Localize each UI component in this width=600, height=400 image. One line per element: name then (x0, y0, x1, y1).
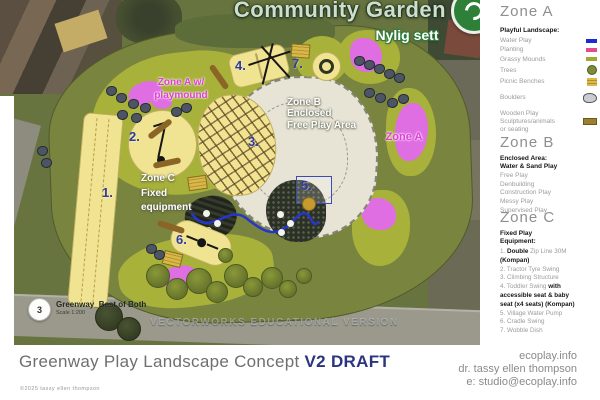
stepping-stone (287, 220, 294, 227)
equipment-item-1: 1. Double Zip Line 30M (500, 248, 597, 257)
contact-block: ecoplay.info dr. tassy ellen thompson e:… (458, 350, 577, 390)
equipment-item-4c: seat (x4 seats) (Kompan) (500, 301, 597, 310)
boulders-swatch-icon (583, 93, 597, 103)
legend-row-picnic-benches: Picnic Benches (500, 78, 597, 86)
marker-4: 4. (235, 58, 246, 73)
contact-website: ecoplay.info (458, 350, 577, 363)
legend-row-wooden-play: Wooden Play Sculptures/animals or seatin… (500, 110, 597, 134)
stepping-stone (278, 229, 285, 236)
page-margin (0, 96, 14, 345)
legend-row-grassy-mounds: Grassy Mounds (500, 56, 597, 63)
zone-b-heading: Zone B (500, 134, 597, 151)
zone-a-heading: Zone A (500, 3, 597, 20)
boulder-icon (37, 146, 48, 156)
equipment-item-2: 2. Tractor Tyre Swing (500, 266, 597, 275)
legend-row-water-play: Water Play (500, 37, 597, 44)
marker-2: 2. (129, 129, 140, 144)
wooden-play-swatch-icon (583, 118, 597, 125)
tree-icon (206, 281, 228, 303)
legend-section-zone-c: Zone C Fixed Play Equipment: 1. Double Z… (500, 209, 597, 336)
concept-board-page: 1. 2. 3. 4. 5. 6. 7. Zone A w/ playmound… (0, 0, 600, 400)
equipment-item-3: 3. Climbing Structure (500, 274, 597, 283)
marker-1: 1. (102, 185, 113, 200)
planting-swatch-icon (586, 48, 597, 52)
map-sublabel: Nylig sett (352, 27, 462, 43)
zone-a-right-label: Zone A (384, 130, 424, 144)
tree-icon (296, 268, 312, 284)
page-title: Greenway Play Landscape Concept V2 DRAFT (19, 352, 390, 372)
water-pump-icon (302, 197, 316, 211)
tree-icon (166, 278, 188, 300)
vectorworks-watermark: VECTORWORKS EDUCATIONAL VERSION (150, 317, 399, 328)
stepping-stone (214, 220, 221, 227)
wobble-dish-area (312, 52, 341, 81)
legend-row-boulders: Boulders (500, 93, 597, 103)
site-plan-map: 1. 2. 3. 4. 5. 6. 7. Zone A w/ playmound… (0, 0, 480, 345)
legend-row-trees: Trees (500, 65, 597, 75)
marker-3: 3. (248, 134, 259, 149)
tree-icon (243, 277, 263, 297)
sheet-number-badge: 3 (28, 298, 51, 321)
legend-section-zone-a: Zone A Playful Landscape: Water Play Pla… (500, 3, 597, 134)
equipment-item-6: 6. Cradle Swing (500, 318, 597, 327)
tree-icon (218, 248, 233, 263)
grassy-mounds-swatch-icon (586, 57, 597, 61)
equipment-item-1b: (Kompan) (500, 257, 597, 266)
zone-c-heading: Zone C (500, 209, 597, 226)
map-place-label: Community Garden (180, 0, 480, 23)
drawing-title: Greenway_Best of Both (56, 300, 146, 309)
zone-c-label: Zone C Fixed equipment (141, 172, 192, 216)
marker-6: 6. (176, 232, 187, 247)
version-badge: V2 DRAFT (305, 352, 391, 371)
water-play-swatch-icon (586, 39, 597, 43)
tree-icon (279, 280, 297, 298)
stepping-stone (277, 211, 284, 218)
picnic-benches-swatch-icon (587, 78, 597, 86)
equipment-item-4: 4. Toddler Swing with (500, 283, 597, 292)
legend-sidebar: Zone A Playful Landscape: Water Play Pla… (480, 0, 600, 345)
marker-5: 5. (301, 178, 312, 193)
legend-title: Playful Landscape: (500, 27, 597, 34)
trees-swatch-icon (587, 65, 597, 75)
marker-7: 7. (292, 56, 303, 71)
stepping-stone (203, 210, 210, 217)
equipment-list: 1. Double Zip Line 30M (Kompan) 2. Tract… (500, 248, 597, 336)
copyright-text: ©2025 tassy ellen thompson (20, 386, 100, 392)
equipment-item-7: 7. Wobble Dish (500, 327, 597, 336)
legend-row-planting: Planting (500, 46, 597, 53)
equipment-item-4b: accessible seat & baby (500, 292, 597, 301)
tree-icon (117, 317, 141, 341)
contact-email: e: studio@ecoplay.info (458, 376, 577, 389)
legend-section-zone-b: Zone B Enclosed Area: Water & Sand Play … (500, 134, 597, 216)
equipment-item-5: 5. Village Water Pump (500, 310, 597, 319)
contact-author: dr. tassy ellen thompson (458, 363, 577, 376)
drawing-scale: Scale 1:200 (56, 310, 85, 316)
zone-b-label: Zone B Enclosed Free Play Area (287, 97, 356, 131)
zone-a-playmound-label: Zone A w/ playmound (150, 76, 212, 102)
